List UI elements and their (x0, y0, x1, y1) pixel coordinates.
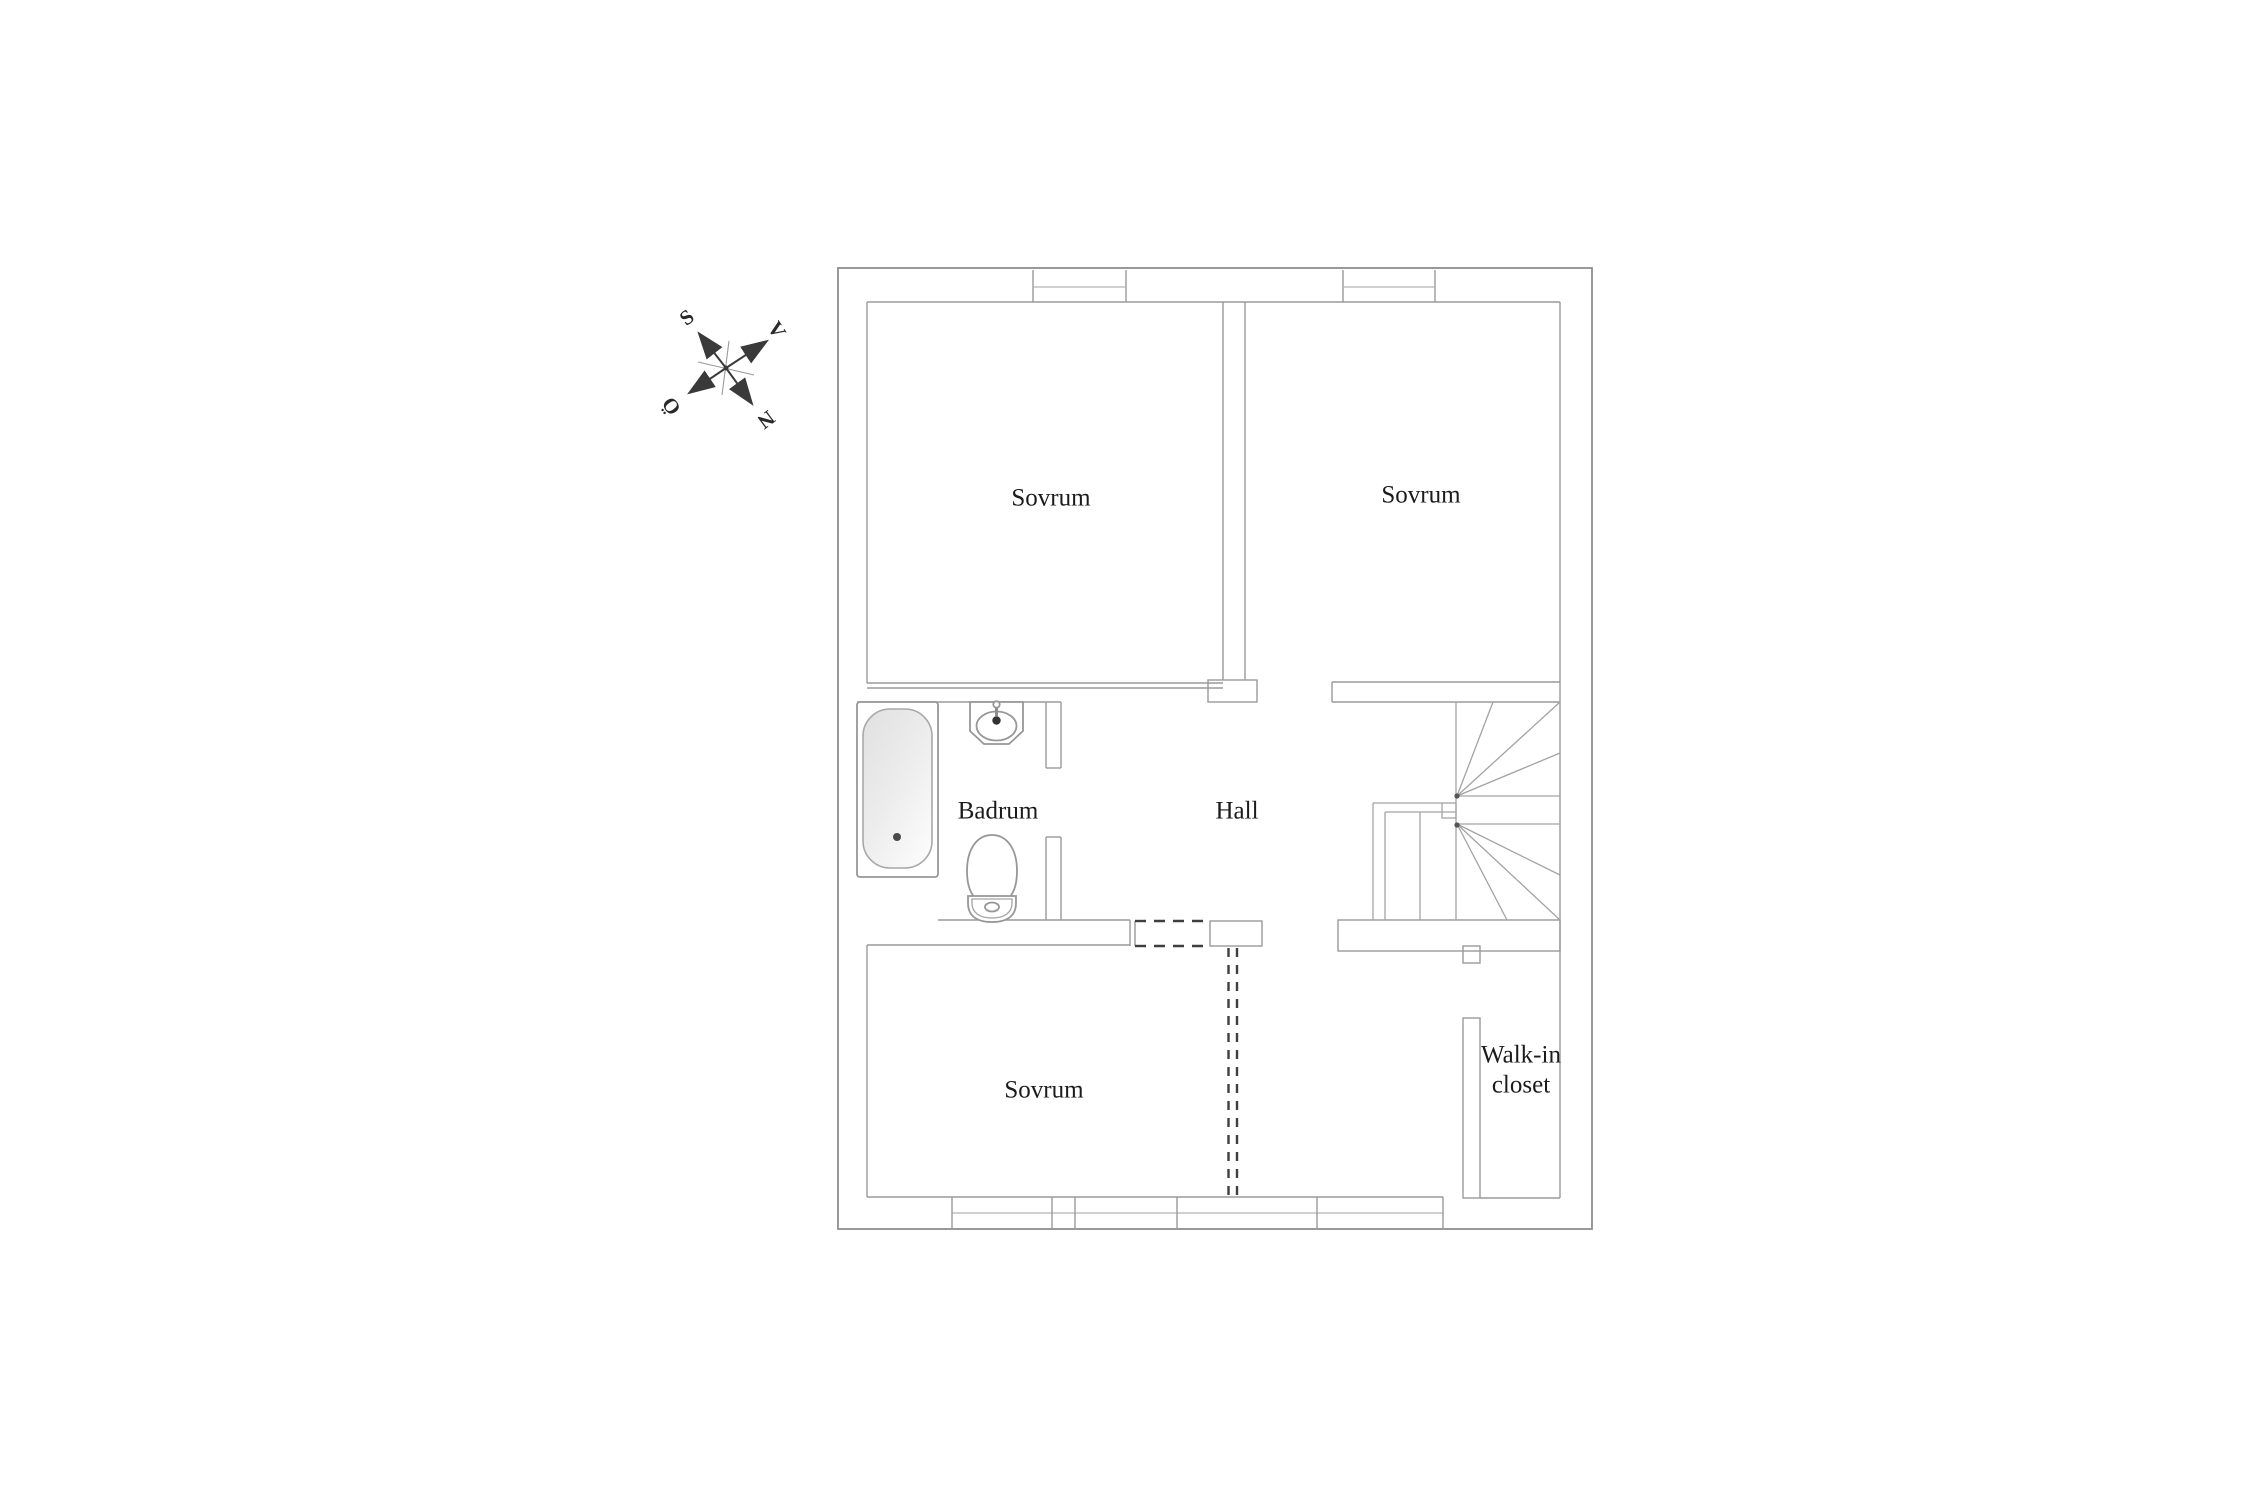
label-bedroom-top-left: Sovrum (1011, 485, 1091, 512)
compass-arrow-east (692, 368, 726, 391)
label-walk-in-closet-line1: Walk-in (1481, 1042, 1561, 1069)
compass-label-south: S (675, 304, 699, 330)
bathtub-icon (857, 702, 938, 877)
interior-walls (857, 302, 1560, 1198)
toilet-icon (967, 835, 1017, 922)
dashed-opening-horizontal (1135, 921, 1210, 946)
floor-plan-drawing: S V Ö N Sovrum Sovrum Sovrum Badrum Hall… (0, 0, 2250, 1500)
label-bedroom-bottom: Sovrum (1004, 1077, 1084, 1104)
window-top-left (1033, 270, 1126, 302)
exterior-walls (838, 268, 1592, 1229)
tub-drain (893, 833, 901, 841)
label-bathroom: Badrum (958, 798, 1039, 825)
compass-label-west: V (763, 317, 791, 343)
sink-icon (970, 701, 1023, 744)
dashed-partition-vertical (1229, 948, 1238, 1197)
window-top-right (1343, 270, 1435, 302)
label-bedroom-top-right: Sovrum (1381, 482, 1461, 509)
compass-arrow-west (726, 343, 764, 368)
compass-rose: S V Ö N (657, 304, 791, 434)
label-walk-in-closet-line2: closet (1492, 1072, 1550, 1099)
faucet-icon (993, 701, 999, 707)
floor-plan-page: S V Ö N Sovrum Sovrum Sovrum Badrum Hall… (0, 0, 2250, 1500)
label-hall: Hall (1215, 798, 1258, 825)
compass-label-east: Ö (657, 393, 686, 420)
compass-label-north: N (753, 406, 780, 434)
staircase-icon (1373, 702, 1560, 920)
room-labels: Sovrum Sovrum Sovrum Badrum Hall Walk-in… (958, 482, 1562, 1104)
